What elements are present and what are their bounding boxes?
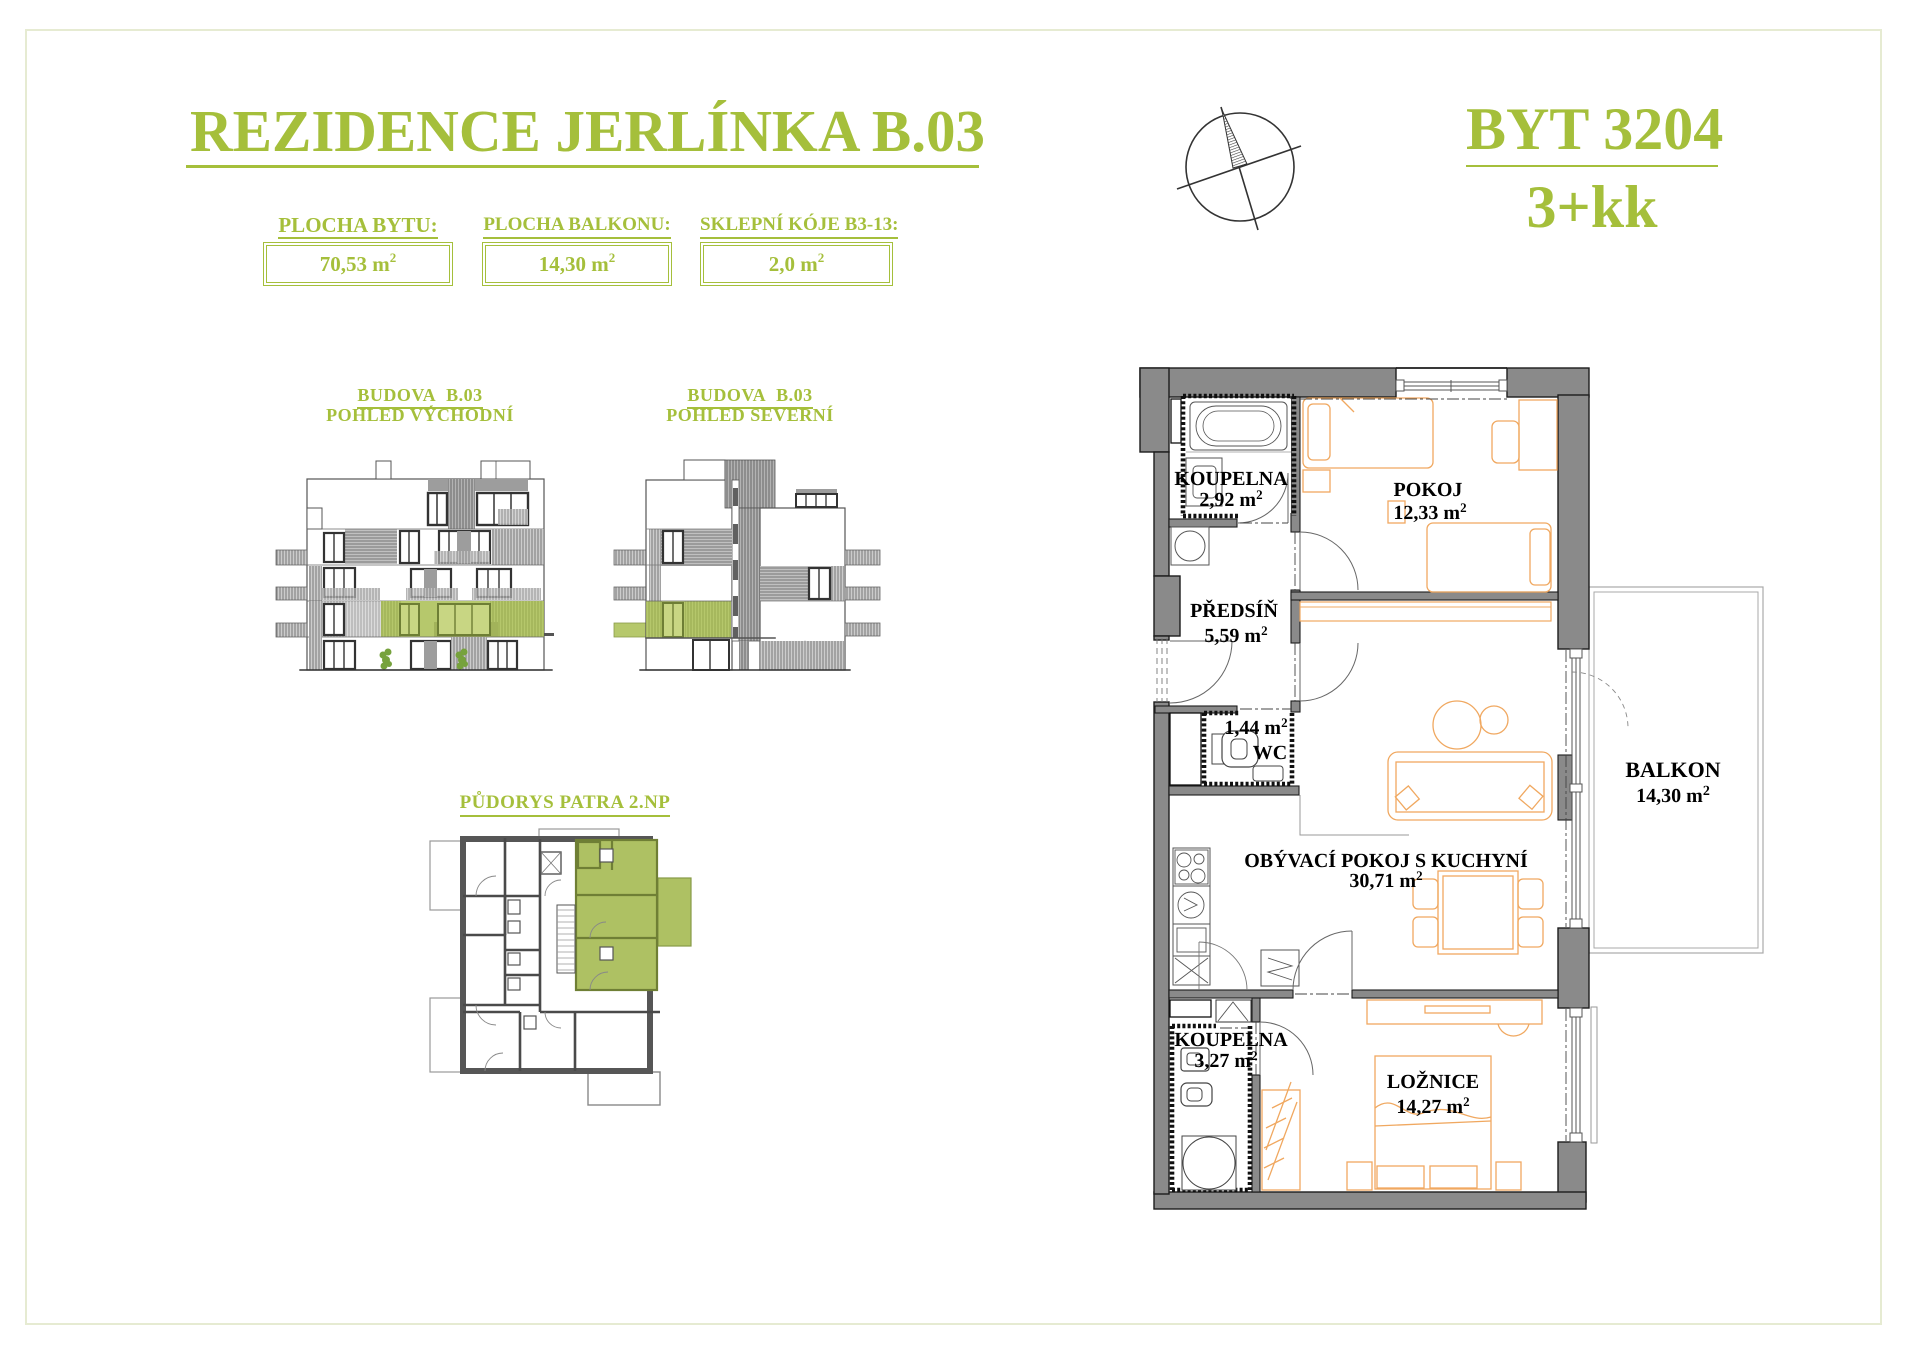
svg-text:3,27 m2: 3,27 m2 <box>1194 1048 1257 1072</box>
svg-text:1,44 m2: 1,44 m2 <box>1224 715 1287 739</box>
svg-text:POKOJ: POKOJ <box>1394 479 1463 501</box>
svg-text:5,59 m2: 5,59 m2 <box>1204 623 1267 647</box>
svg-text:OBÝVACÍ POKOJ S KUCHYNÍ: OBÝVACÍ POKOJ S KUCHYNÍ <box>1244 849 1528 872</box>
svg-text:30,71 m2: 30,71 m2 <box>1349 868 1422 892</box>
svg-text:12,33 m2: 12,33 m2 <box>1393 500 1466 524</box>
svg-text:14,30 m2: 14,30 m2 <box>1636 784 1710 807</box>
svg-text:WC: WC <box>1253 742 1287 764</box>
svg-text:KOUPELNA: KOUPELNA <box>1174 468 1288 490</box>
svg-text:LOŽNICE: LOŽNICE <box>1387 1070 1479 1093</box>
svg-text:2,92 m2: 2,92 m2 <box>1199 487 1262 511</box>
svg-text:14,27 m2: 14,27 m2 <box>1396 1094 1469 1118</box>
svg-text:BALKON: BALKON <box>1625 757 1720 782</box>
svg-text:PŘEDSÍŇ: PŘEDSÍŇ <box>1190 599 1278 622</box>
svg-text:KOUPELNA: KOUPELNA <box>1174 1029 1288 1051</box>
